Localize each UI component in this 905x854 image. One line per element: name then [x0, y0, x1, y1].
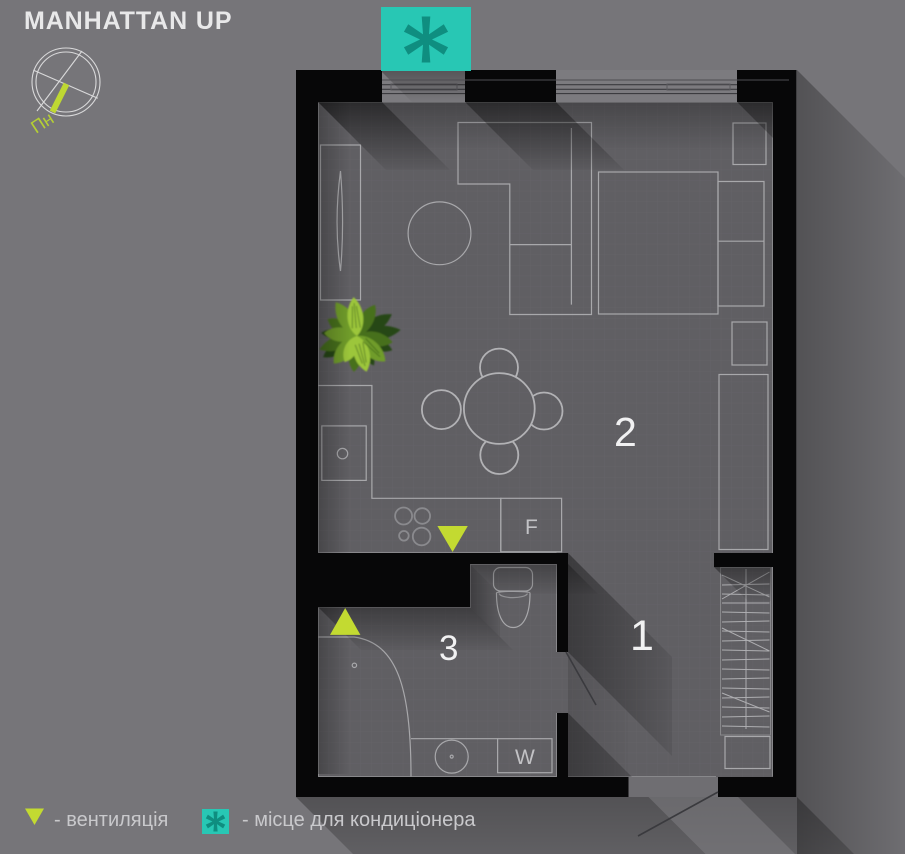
svg-text:W: W — [515, 746, 535, 769]
svg-text:2: 2 — [614, 409, 637, 455]
svg-text:- вентиляція: - вентиляція — [54, 809, 168, 831]
svg-text:- місце для кондиціонера: - місце для кондиціонера — [242, 809, 476, 831]
svg-text:F: F — [525, 516, 538, 539]
svg-text:3: 3 — [439, 629, 458, 668]
svg-text:MANHATTAN UP: MANHATTAN UP — [24, 7, 232, 35]
svg-text:1: 1 — [630, 612, 654, 660]
